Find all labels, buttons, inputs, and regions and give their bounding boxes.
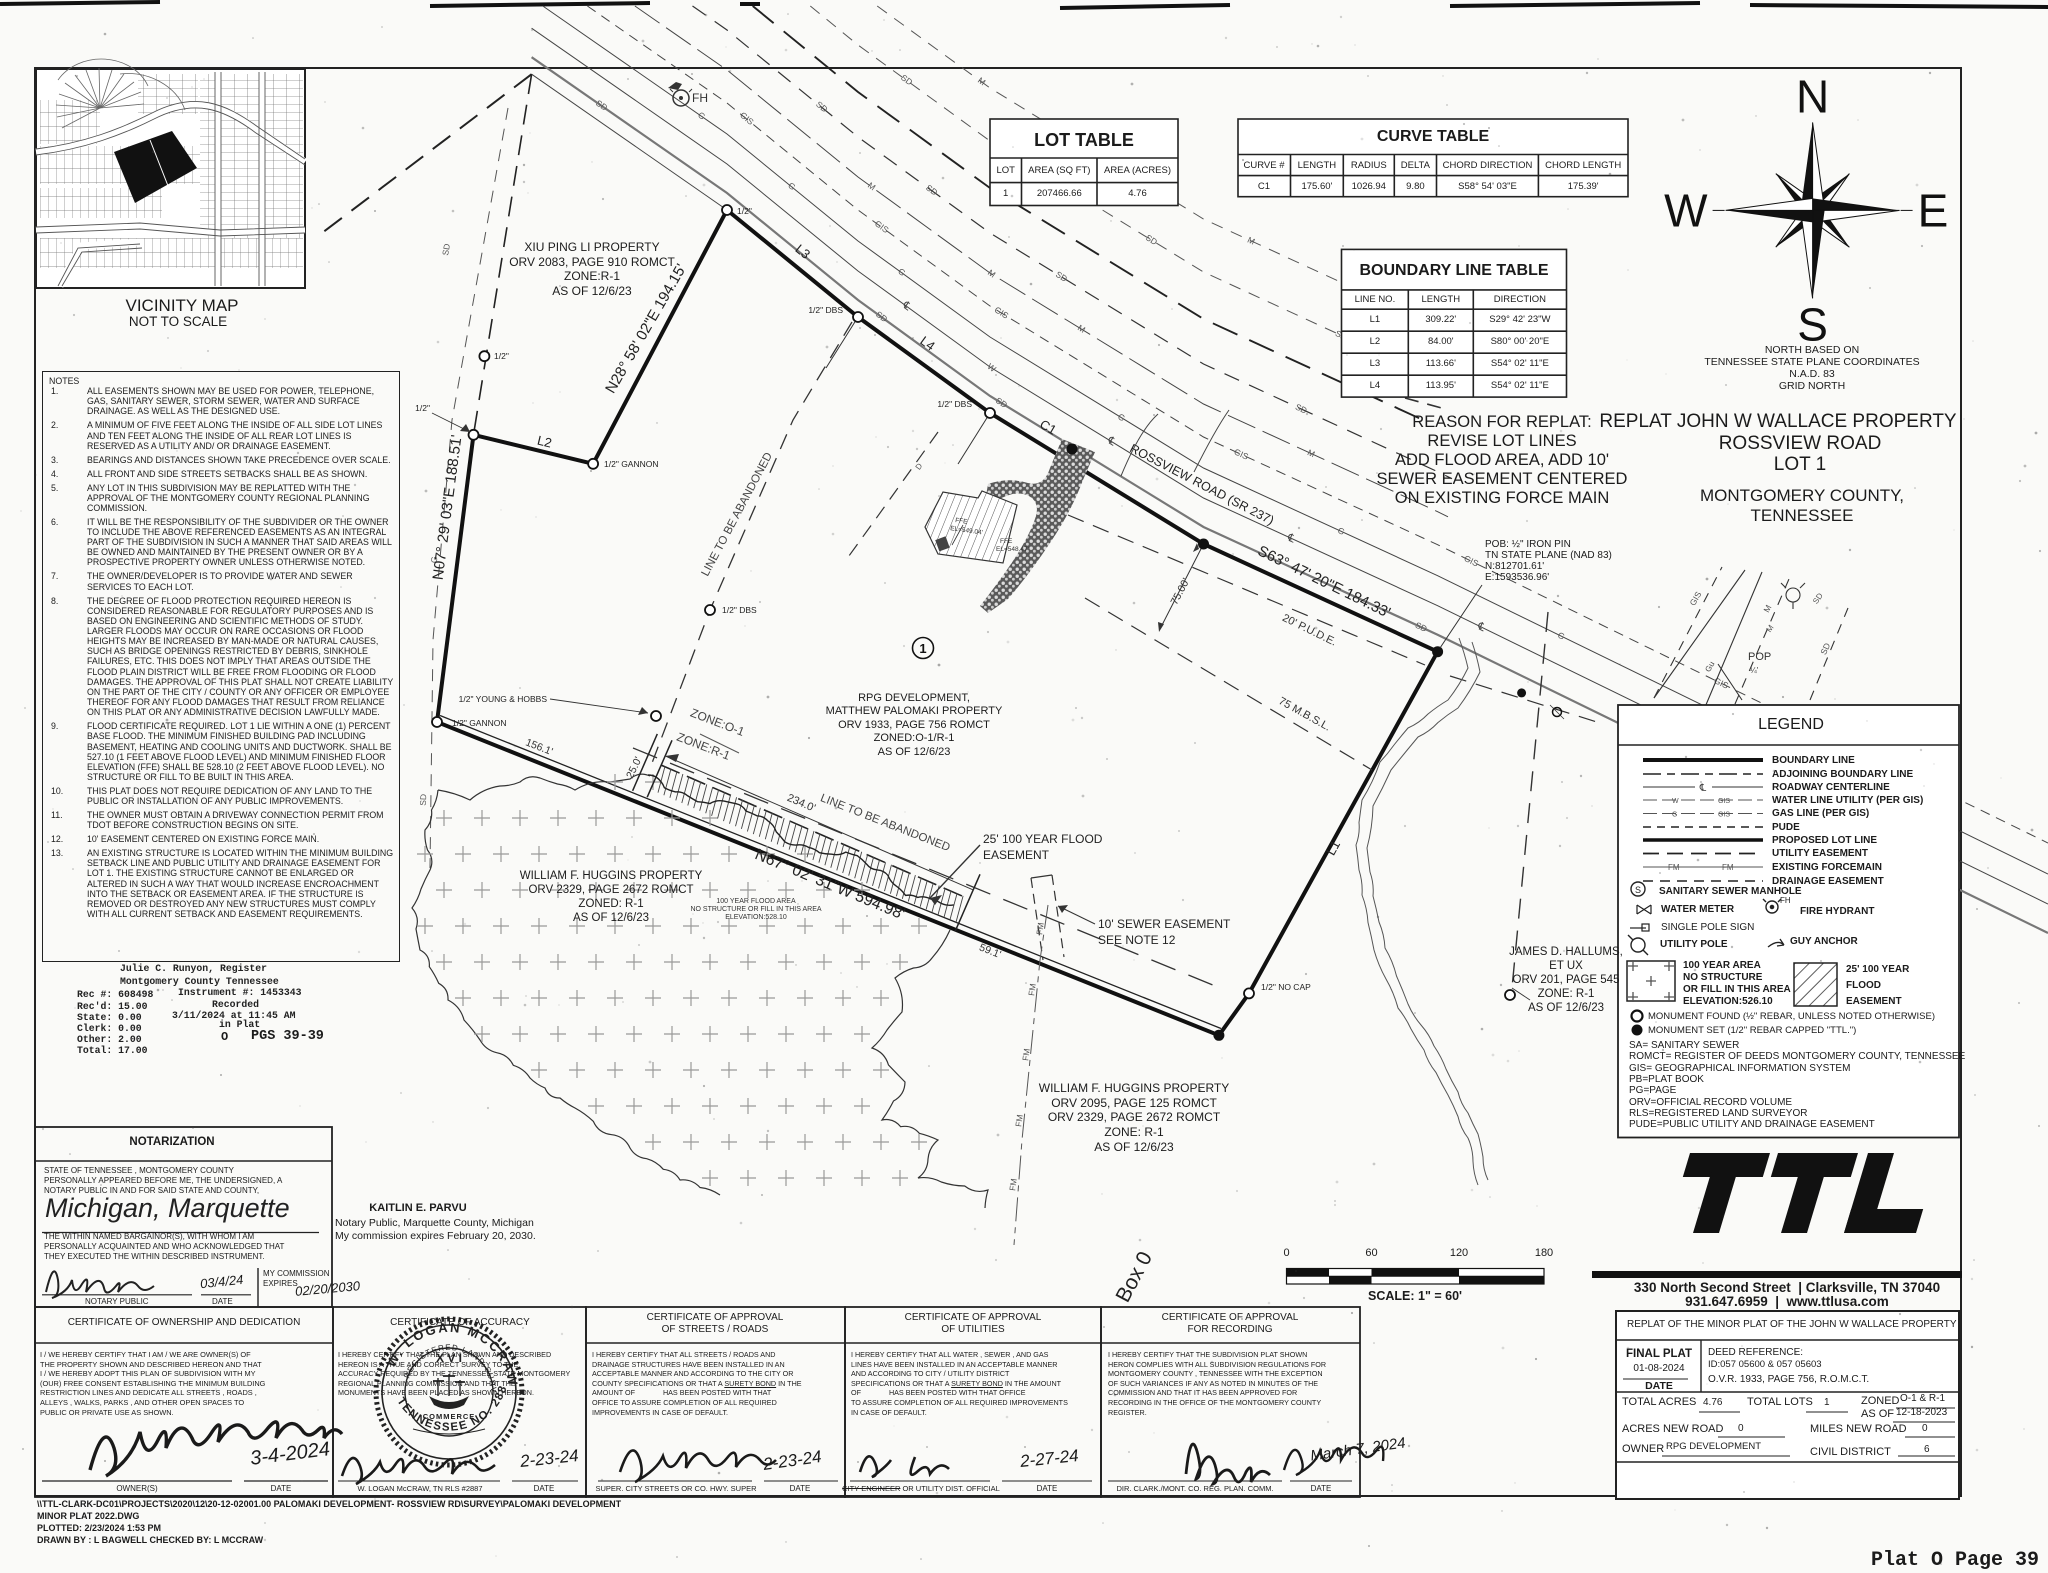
svg-text:W: W bbox=[1672, 798, 1679, 805]
svg-text:℄: ℄ bbox=[1285, 531, 1297, 545]
svg-text:SD: SD bbox=[1054, 269, 1069, 284]
svg-text:1/2": 1/2" bbox=[494, 351, 509, 361]
svg-text:G: G bbox=[696, 110, 707, 122]
svg-text:M: M bbox=[986, 267, 998, 279]
svg-text:GIS: GIS bbox=[1687, 589, 1703, 607]
svg-text:SD: SD bbox=[1811, 591, 1825, 605]
svg-text:FFE: FFE bbox=[1000, 538, 1013, 545]
svg-text:SEE NOTE 12: SEE NOTE 12 bbox=[1098, 933, 1176, 947]
svg-text:S: S bbox=[1635, 885, 1641, 895]
svg-text:G: G bbox=[1556, 630, 1566, 642]
svg-text:1/2" NO CAP: 1/2" NO CAP bbox=[1261, 982, 1311, 992]
svg-text:E: E bbox=[1918, 184, 1949, 236]
svg-text:1/2" GANNON: 1/2" GANNON bbox=[452, 718, 507, 728]
svg-text:1/2": 1/2" bbox=[737, 206, 752, 216]
svg-text:75.00': 75.00' bbox=[1168, 576, 1192, 607]
svg-text:100 YEAR FLOOD AREA: 100 YEAR FLOOD AREA bbox=[716, 898, 796, 905]
svg-text:SD: SD bbox=[1414, 620, 1429, 634]
svg-text:D: D bbox=[914, 461, 925, 471]
svg-text:FM: FM bbox=[1007, 1178, 1019, 1192]
svg-text:SD: SD bbox=[418, 794, 429, 806]
svg-text:N: N bbox=[1796, 70, 1829, 122]
svg-text:SD: SD bbox=[994, 395, 1009, 410]
svg-text:1/2" DBS: 1/2" DBS bbox=[937, 399, 972, 409]
svg-text:GIS: GIS bbox=[873, 218, 891, 235]
svg-text:75 M.B.S.L.: 75 M.B.S.L. bbox=[1276, 695, 1332, 733]
svg-text:1/2" DBS: 1/2" DBS bbox=[808, 305, 843, 315]
svg-text:S: S bbox=[1797, 298, 1828, 350]
svg-text:SD: SD bbox=[1818, 641, 1832, 656]
svg-text:SD: SD bbox=[899, 72, 914, 87]
svg-text:C1: C1 bbox=[1037, 416, 1059, 437]
svg-text:FM: FM bbox=[1668, 863, 1680, 872]
svg-text:59.1': 59.1' bbox=[977, 942, 1002, 961]
svg-text:L2: L2 bbox=[536, 433, 554, 451]
svg-text:FM: FM bbox=[1013, 1114, 1025, 1128]
svg-text:FM: FM bbox=[1034, 922, 1046, 936]
svg-text:25' 100 YEAR FLOOD: 25' 100 YEAR FLOOD bbox=[983, 832, 1103, 846]
svg-text:FH: FH bbox=[692, 91, 708, 105]
svg-text:G: G bbox=[1672, 812, 1677, 819]
svg-text:1/2": 1/2" bbox=[415, 403, 430, 413]
svg-text:LINE TO BE ABANDONED: LINE TO BE ABANDONED bbox=[700, 451, 776, 579]
svg-text:G: G bbox=[1336, 525, 1346, 537]
svg-text:POP: POP bbox=[1748, 651, 1771, 663]
svg-text:FM: FM bbox=[1722, 863, 1734, 872]
svg-text:GIS: GIS bbox=[1718, 812, 1730, 819]
svg-text:GIS: GIS bbox=[993, 304, 1011, 320]
svg-text:M: M bbox=[1306, 447, 1317, 459]
svg-text:25.0': 25.0' bbox=[624, 755, 645, 780]
svg-text:G: G bbox=[1116, 411, 1127, 423]
svg-text:N07° 29' 03"E 188.51': N07° 29' 03"E 188.51' bbox=[430, 434, 466, 581]
svg-text:ZONE:R-1: ZONE:R-1 bbox=[675, 730, 733, 763]
svg-text:SD: SD bbox=[1144, 232, 1159, 247]
svg-text:M: M bbox=[866, 180, 878, 192]
svg-text:1/2" GANNON: 1/2" GANNON bbox=[604, 459, 659, 469]
svg-text:LINE TO BE ABANDONED: LINE TO BE ABANDONED bbox=[819, 792, 952, 854]
svg-text:NO STRUCTURE OR FILL IN THIS A: NO STRUCTURE OR FILL IN THIS AREA bbox=[690, 906, 821, 913]
svg-text:EL=548.47': EL=548.47' bbox=[996, 546, 1029, 553]
svg-text:ROSSVIEW ROAD (SR 237): ROSSVIEW ROAD (SR 237) bbox=[1127, 441, 1276, 528]
svg-text:℄: ℄ bbox=[1699, 783, 1707, 794]
svg-text:234.0': 234.0' bbox=[785, 792, 817, 815]
svg-text:M: M bbox=[1076, 323, 1087, 335]
svg-text:L3: L3 bbox=[792, 241, 813, 262]
svg-text:S63° 47' 20"E 184.33': S63° 47' 20"E 184.33' bbox=[1255, 542, 1393, 621]
svg-text:FM: FM bbox=[1020, 1048, 1032, 1062]
svg-text:GIS: GIS bbox=[1718, 798, 1730, 805]
svg-text:℄: ℄ bbox=[900, 299, 914, 313]
svg-text:W: W bbox=[986, 361, 998, 374]
svg-text:EASEMENT: EASEMENT bbox=[983, 848, 1050, 862]
svg-text:M: M bbox=[1761, 603, 1773, 614]
svg-text:20' P.U.D.E.: 20' P.U.D.E. bbox=[1280, 612, 1338, 649]
svg-text:Box 0: Box 0 bbox=[1112, 1248, 1158, 1306]
svg-text:M: M bbox=[1246, 235, 1257, 247]
svg-text:1: 1 bbox=[919, 641, 926, 656]
svg-text:GIS: GIS bbox=[738, 110, 756, 127]
svg-text:ELEVATION:528.10: ELEVATION:528.10 bbox=[725, 914, 787, 921]
svg-text:GIS: GIS bbox=[1463, 553, 1481, 569]
svg-text:Gu: Gu bbox=[1703, 660, 1716, 674]
svg-text:10' SEWER EASEMENT: 10' SEWER EASEMENT bbox=[1098, 917, 1231, 931]
svg-text:1/2" YOUNG & HOBBS: 1/2" YOUNG & HOBBS bbox=[459, 694, 548, 704]
svg-text:1/2" DBS: 1/2" DBS bbox=[722, 605, 757, 615]
svg-text:W: W bbox=[1664, 184, 1708, 236]
svg-text:FH: FH bbox=[1780, 896, 1791, 905]
svg-text:¼': ¼' bbox=[1750, 666, 1759, 675]
svg-text:COMMERCE: COMMERCE bbox=[423, 1412, 476, 1421]
svg-text:FM: FM bbox=[1026, 983, 1038, 997]
svg-text:SD: SD bbox=[440, 243, 452, 256]
svg-text:℄: ℄ bbox=[1105, 434, 1118, 448]
svg-text:℄: ℄ bbox=[1475, 620, 1488, 634]
svg-text:ZONE:O-1: ZONE:O-1 bbox=[688, 706, 746, 739]
svg-text:GIS: GIS bbox=[1233, 446, 1251, 461]
svg-text:L4: L4 bbox=[917, 333, 938, 354]
